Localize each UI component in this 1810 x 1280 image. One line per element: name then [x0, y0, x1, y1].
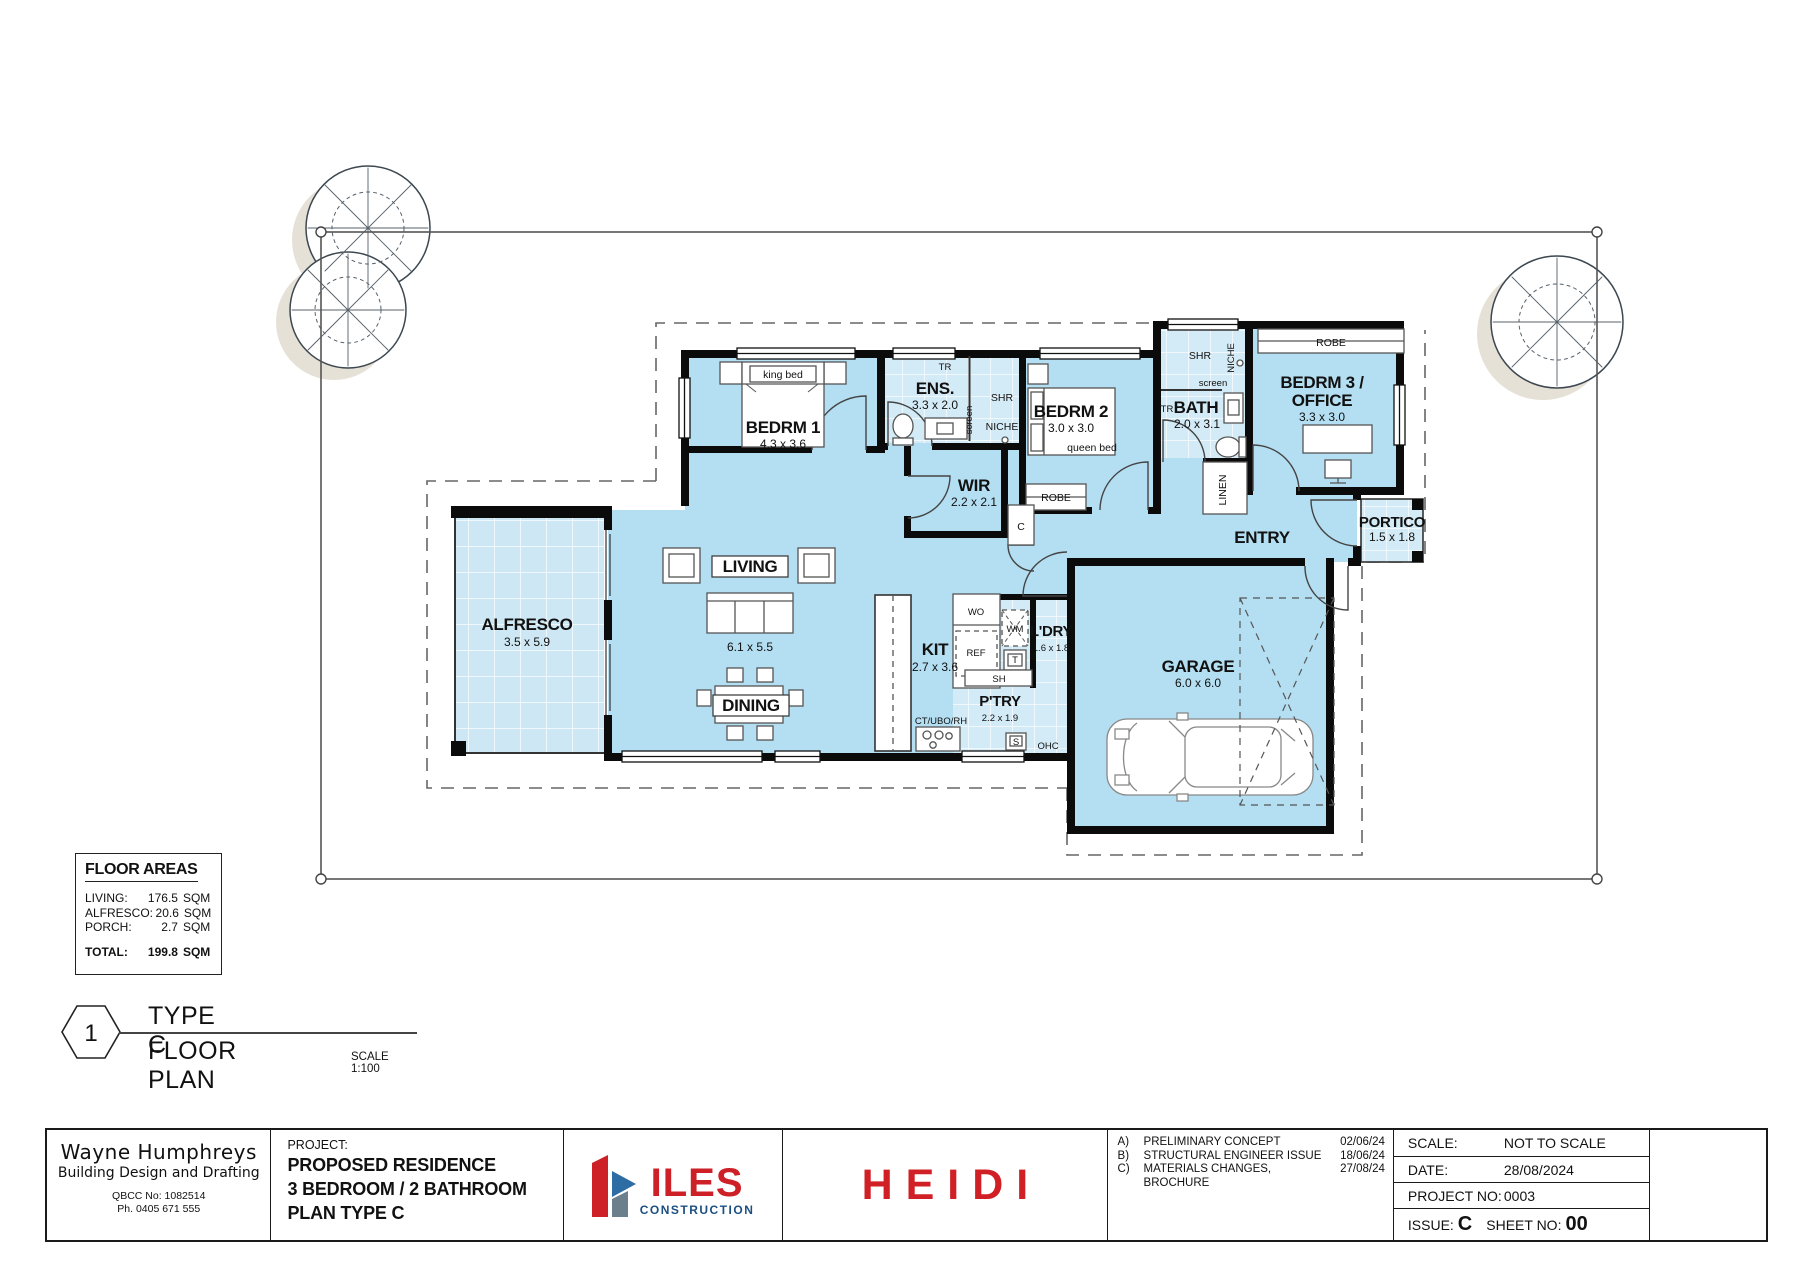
- room-dim-garage: 6.0 x 6.0: [1175, 676, 1221, 690]
- floor-areas-box: FLOOR AREAS LIVING: 176.5 SQM ALFRESCO: …: [75, 853, 222, 975]
- ohc-label: OHC: [1037, 741, 1058, 752]
- drawing-number: 1: [84, 1020, 97, 1047]
- ct-label: CT/UBO/RH: [915, 716, 967, 727]
- meta-cell: SCALE: NOT TO SCALE DATE: 28/08/2024 PRO…: [1394, 1130, 1650, 1240]
- sh-label: SH: [992, 674, 1005, 685]
- project-cell: PROJECT: PROPOSED RESIDENCE 3 BEDROOM / …: [271, 1130, 563, 1240]
- floor-area-row: LIVING: 176.5 SQM: [85, 891, 212, 906]
- date-row: DATE: 28/08/2024: [1394, 1157, 1649, 1183]
- niche-label-bath: NICHE: [1226, 343, 1237, 373]
- scale-row: SCALE: NOT TO SCALE: [1394, 1130, 1649, 1157]
- designer-phone: Ph. 0405 671 555: [47, 1203, 270, 1215]
- room-dim-ldry: 1.6 x 1.8: [1033, 643, 1069, 654]
- logo-name: ILES: [651, 1165, 744, 1201]
- cupboard-label: C: [1017, 521, 1025, 533]
- room-label-portico: PORTICO: [1359, 514, 1426, 531]
- room-dim-wir: 2.2 x 2.1: [951, 495, 997, 509]
- room-label-bedrm2: BEDRM 2: [1034, 402, 1108, 421]
- room-label-entry: ENTRY: [1234, 528, 1290, 547]
- floor-area-total: TOTAL: 199.8 SQM: [85, 945, 212, 960]
- title-hexagon: 1: [61, 1005, 121, 1061]
- tr-label: TR: [939, 362, 952, 373]
- floor-area-row: PORCH: 2.7 SQM: [85, 920, 212, 935]
- room-label-garage: GARAGE: [1162, 657, 1235, 676]
- niche-label: NICHE: [986, 421, 1019, 433]
- room-dim-portico: 1.5 x 1.8: [1369, 530, 1415, 544]
- shr-label: SHR: [991, 392, 1014, 404]
- linen-label: LINEN: [1217, 475, 1229, 506]
- floor-plan-svg: BEDRM 1 4.3 x 3.6 king bed ENS. 3.3 x 2.…: [0, 0, 1810, 1280]
- room-dim-ptry: 2.2 x 1.9: [982, 713, 1018, 724]
- room-label-ptry: P'TRY: [979, 693, 1021, 710]
- sink-label: S: [1013, 737, 1019, 748]
- client-cell: HEIDI: [783, 1130, 1107, 1240]
- room-label-kit: KIT: [922, 640, 949, 659]
- room-dim-bedrm2: 3.0 x 3.0: [1048, 421, 1094, 435]
- room-label-wir: WIR: [958, 476, 990, 495]
- issue-row: ISSUE: C SHEET NO: 00: [1394, 1209, 1649, 1240]
- room-label-ldry: L'DRY: [1030, 623, 1073, 640]
- shr-label-bath: SHR: [1189, 350, 1212, 362]
- room-label-living: LIVING: [723, 557, 778, 576]
- drawing-title-line2: FLOOR PLAN: [148, 1037, 237, 1095]
- room-dim-bedrm3: 3.3 x 3.0: [1299, 410, 1345, 424]
- screen-label-bath: screen: [1199, 378, 1228, 389]
- logo-subtitle: CONSTRUCTION: [640, 1203, 755, 1217]
- sheet-value: 00: [1565, 1213, 1587, 1236]
- room-dim-alfresco: 3.5 x 5.9: [504, 635, 550, 649]
- room-dim-ens: 3.3 x 2.0: [912, 398, 958, 412]
- room-label-bedrm3-2: OFFICE: [1292, 391, 1353, 410]
- floor-areas-title: FLOOR AREAS: [85, 861, 198, 882]
- builder-logo-cell: ILES CONSTRUCTION: [564, 1130, 783, 1240]
- hiles-h-icon: [592, 1153, 638, 1217]
- empty-cell: [1650, 1130, 1766, 1240]
- robe-label-bedrm3: ROBE: [1316, 337, 1346, 349]
- revision-row: A) PRELIMINARY CONCEPT 02/06/24: [1118, 1136, 1385, 1150]
- wo-label: WO: [968, 607, 984, 618]
- revision-row: C) MATERIALS CHANGES, BROCHURE 27/08/24: [1118, 1163, 1385, 1190]
- room-dim-bedrm1: 4.3 x 3.6: [760, 437, 806, 451]
- project-line2: 3 BEDROOM / 2 BATHROOM: [287, 1179, 562, 1200]
- tr-label-bath: TR: [1161, 404, 1174, 415]
- title-block: Wayne Humphreys Building Design and Draf…: [45, 1128, 1768, 1242]
- issue-value: C: [1458, 1213, 1472, 1236]
- room-dim-living: 6.1 x 5.5: [727, 640, 773, 654]
- room-dim-kit: 2.7 x 3.6: [912, 660, 958, 674]
- project-heading: PROJECT:: [287, 1138, 562, 1152]
- room-label-ens: ENS.: [916, 379, 954, 398]
- designer-cell: Wayne Humphreys Building Design and Draf…: [47, 1130, 271, 1240]
- room-label-bath: BATH: [1174, 398, 1219, 417]
- car-icon: [1107, 713, 1313, 801]
- revisions-cell: A) PRELIMINARY CONCEPT 02/06/24 B) STRUC…: [1108, 1130, 1394, 1240]
- designer-tagline: Building Design and Drafting: [47, 1165, 270, 1181]
- robe-label-bedrm2: ROBE: [1041, 492, 1071, 504]
- drawing-scale-note: SCALE 1:100: [351, 1051, 389, 1075]
- drawing-sheet: BEDRM 1 4.3 x 3.6 king bed ENS. 3.3 x 2.…: [0, 0, 1810, 1280]
- tub-label: T: [1012, 655, 1018, 666]
- designer-name: Wayne Humphreys: [47, 1140, 270, 1164]
- designer-qbcc: QBCC No: 1082514: [47, 1190, 270, 1202]
- room-label-alfresco: ALFRESCO: [481, 615, 572, 634]
- room-label-bedrm1: BEDRM 1: [746, 418, 820, 437]
- revision-row: B) STRUCTURAL ENGINEER ISSUE 18/06/24: [1118, 1150, 1385, 1164]
- room-label-bedrm3-1: BEDRM 3 /: [1280, 373, 1364, 392]
- king-bed-label: king bed: [763, 369, 803, 381]
- title-rule: [119, 1032, 417, 1034]
- wm-label: WM: [1007, 624, 1024, 635]
- ref-label: REF: [967, 648, 986, 659]
- project-line1: PROPOSED RESIDENCE: [287, 1155, 562, 1176]
- project-no-row: PROJECT NO: 0003: [1394, 1183, 1649, 1209]
- hiles-logo: ILES CONSTRUCTION: [592, 1153, 755, 1217]
- floor-area-row: ALFRESCO: 20.6 SQM: [85, 906, 212, 921]
- room-label-dining: DINING: [722, 696, 780, 715]
- room-dim-bath: 2.0 x 3.1: [1174, 417, 1220, 431]
- queen-bed-label: queen bed: [1067, 442, 1117, 454]
- screen-label: screen: [964, 406, 975, 435]
- project-line3: PLAN TYPE C: [287, 1203, 562, 1224]
- client-name: HEIDI: [849, 1161, 1042, 1210]
